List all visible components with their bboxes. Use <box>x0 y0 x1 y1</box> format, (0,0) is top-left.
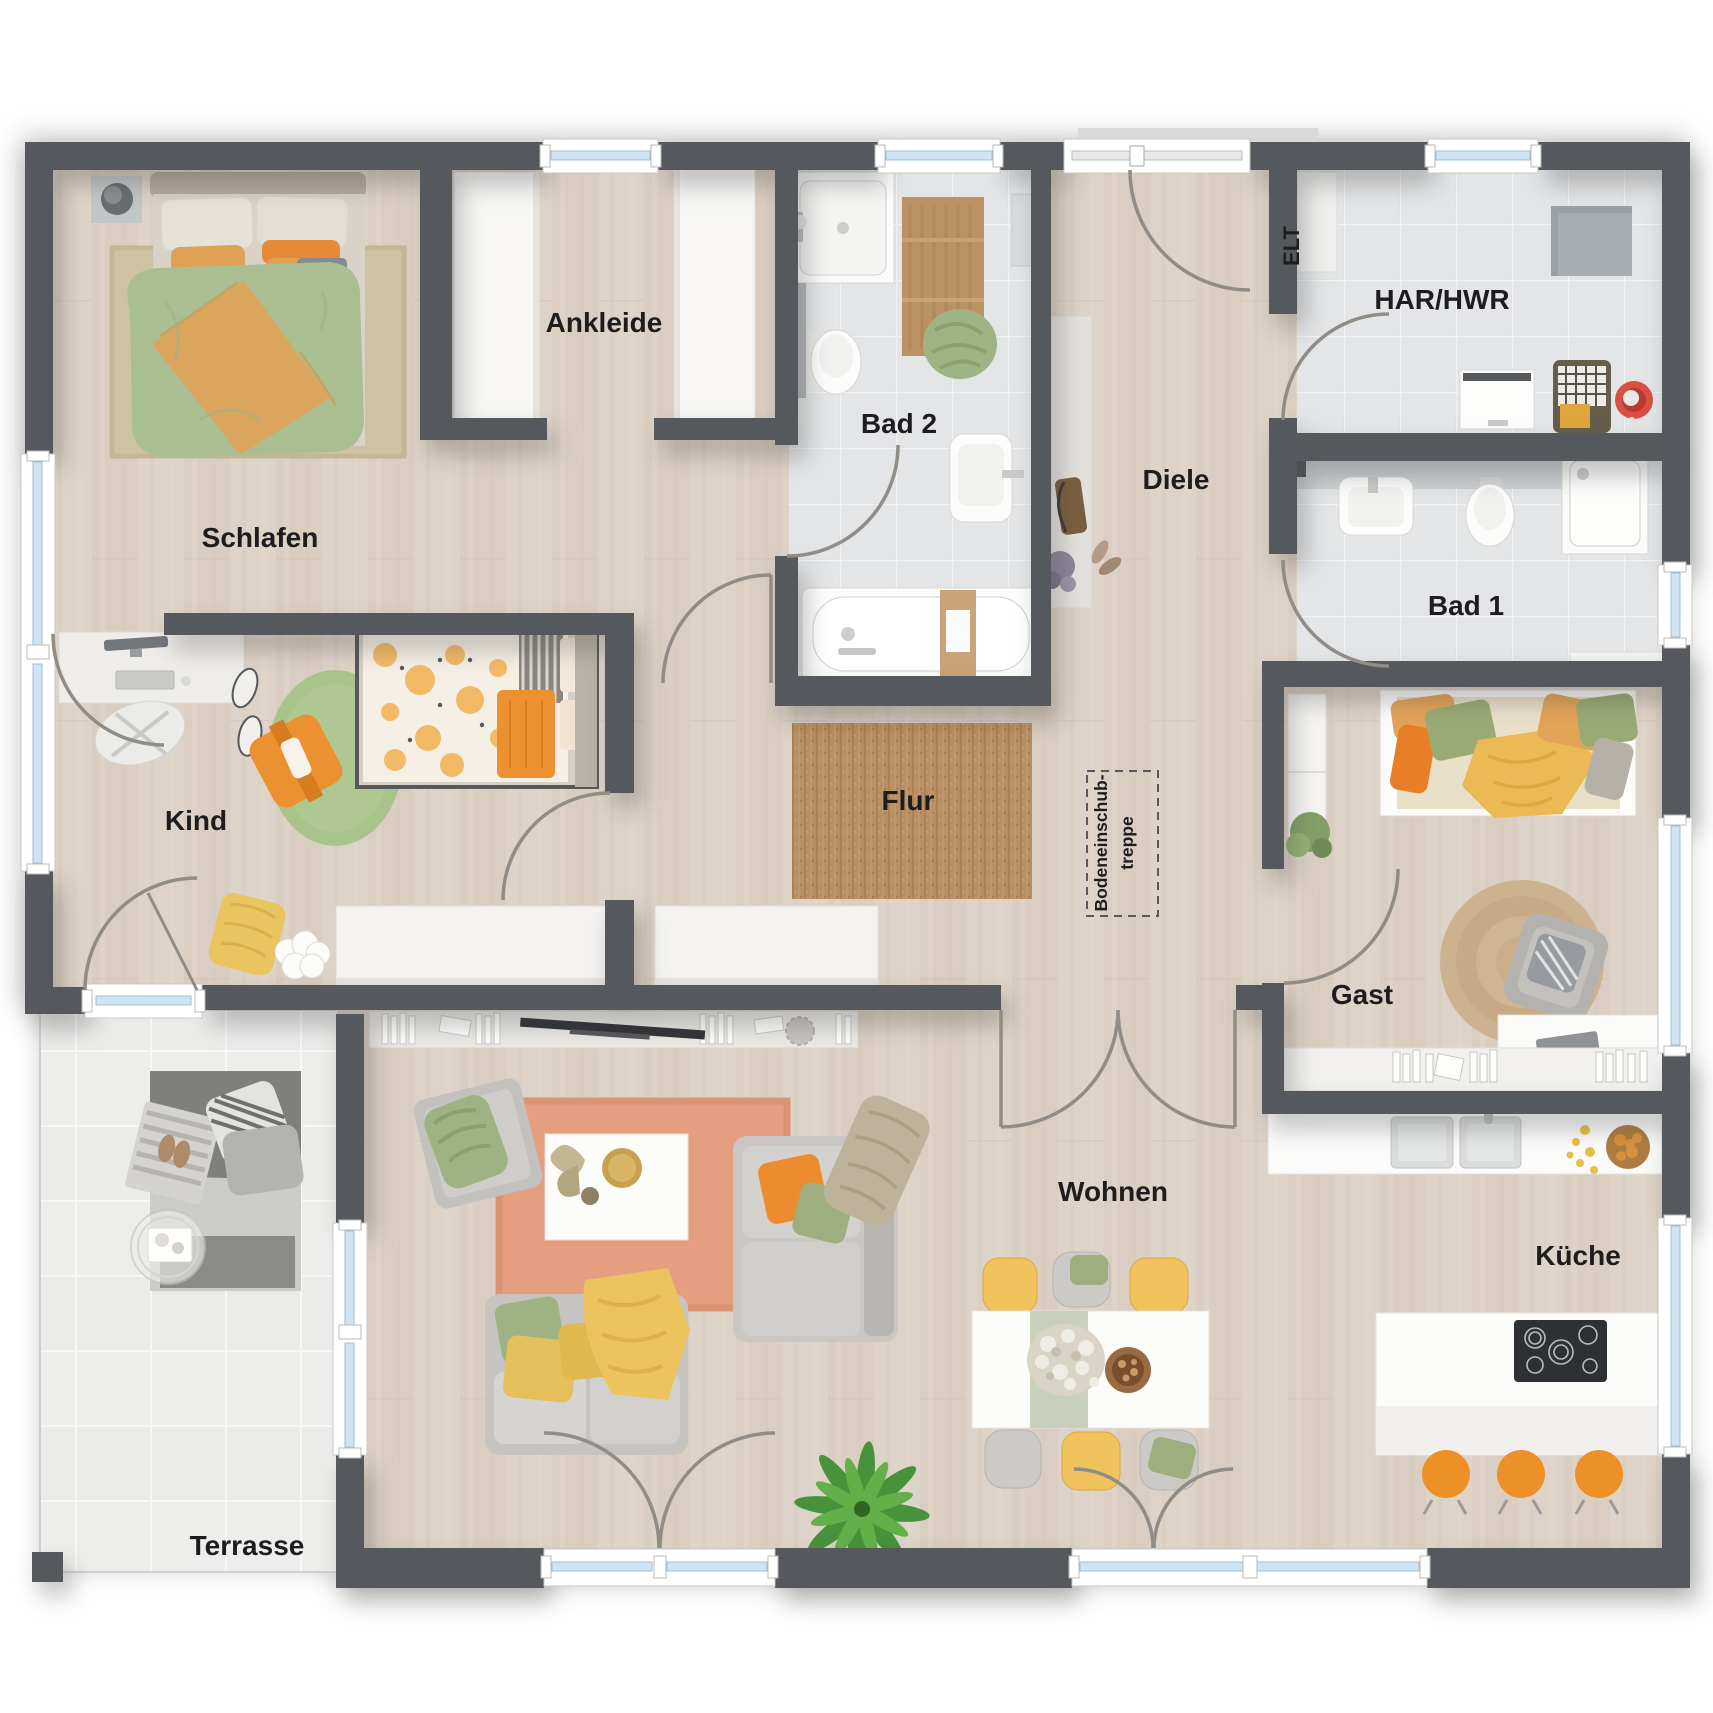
svg-text:Küche: Küche <box>1535 1240 1621 1271</box>
svg-text:Kind: Kind <box>165 805 227 836</box>
svg-text:Wohnen: Wohnen <box>1058 1176 1168 1207</box>
svg-text:treppe: treppe <box>1117 816 1137 870</box>
svg-text:Bodeneinschub-: Bodeneinschub- <box>1091 774 1111 911</box>
svg-text:ELT: ELT <box>1279 225 1304 265</box>
svg-text:Bad 2: Bad 2 <box>861 408 937 439</box>
svg-text:HAR/HWR: HAR/HWR <box>1374 284 1509 315</box>
svg-text:Gast: Gast <box>1331 979 1393 1010</box>
svg-text:Bad 1: Bad 1 <box>1428 590 1504 621</box>
svg-text:Flur: Flur <box>882 785 935 816</box>
svg-text:Diele: Diele <box>1143 464 1210 495</box>
svg-text:Ankleide: Ankleide <box>546 307 663 338</box>
svg-text:Terrasse: Terrasse <box>190 1530 305 1561</box>
svg-text:Schlafen: Schlafen <box>202 522 319 553</box>
